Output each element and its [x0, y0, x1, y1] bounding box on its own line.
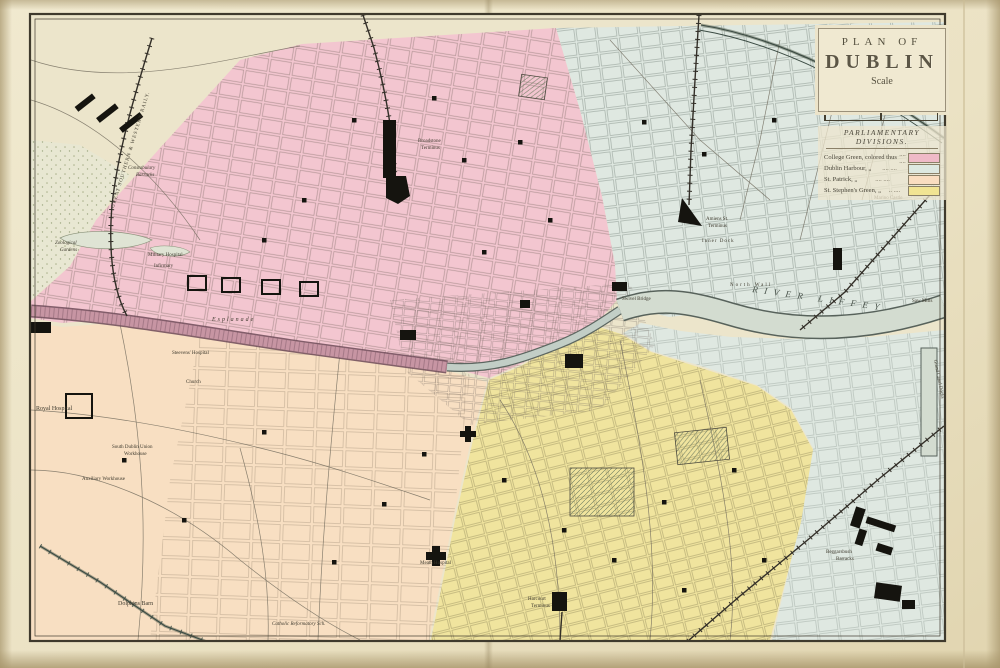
- label-amiens-st-2: Terminus: [708, 224, 727, 229]
- square-mountjoy: [519, 74, 548, 99]
- legend-swatch-st-stephens-green: [908, 186, 940, 196]
- legend-dots: .. ....: [881, 187, 908, 194]
- scale-bar: [824, 112, 938, 121]
- label-beggarsbush: Beggarsbush: [826, 550, 852, 555]
- legend-row-st-stephens-green: St. Stephen's Green, „ .. ....: [818, 185, 946, 196]
- label-zoological: Zoological: [55, 241, 77, 246]
- label-south-dublin-union-2: Workhouse: [124, 452, 147, 457]
- map-title-line2: DUBLIN: [819, 51, 945, 74]
- label-catholic-reformatory: Catholic Reformatory Sch.: [272, 622, 325, 627]
- station-kingsbridge: [31, 322, 51, 333]
- label-broadstone-2: Terminus: [421, 146, 440, 151]
- legend-label: Dublin Harbour, „: [824, 165, 871, 172]
- label-amiens-st: Amiens St.: [706, 217, 728, 222]
- label-swivel-bridge: Swivel Bridge: [622, 297, 652, 302]
- legend-label: St. Patrick, „: [824, 176, 857, 183]
- label-esplanade: Esplanade: [211, 317, 255, 323]
- label-inner-dock: Inner Dock: [702, 239, 735, 244]
- legend-heading: PARLIAMENTARY DIVISIONS.: [826, 128, 938, 149]
- label-harcourt: Harcourt: [528, 597, 546, 602]
- legend-dots: .... ....: [871, 165, 908, 172]
- label-church: Church: [186, 380, 201, 385]
- custom-house: [612, 282, 627, 291]
- legend: PARLIAMENTARY DIVISIONS. College Green, …: [818, 126, 946, 200]
- label-constabulary: Constabulary: [128, 166, 156, 171]
- label-military-hospital: Military Hospital: [148, 253, 183, 258]
- label-steevens-hospital: Steevens' Hospital: [172, 351, 209, 356]
- legend-label: College Green, colored thus: [824, 154, 897, 161]
- legend-dots: .... ....: [897, 151, 908, 165]
- label-broadstone: Broadstone: [418, 139, 442, 144]
- label-zoological-2: Gardens: [60, 248, 77, 253]
- label-north-wall: North Wall: [730, 283, 772, 288]
- title-panel: PLAN OF DUBLIN Scale: [818, 28, 946, 112]
- label-auxiliary-workhouse: Auxiliary Workhouse: [82, 477, 126, 482]
- label-south-dublin-union: South Dublin Union: [112, 445, 153, 450]
- label-beggarsbush-2: Barracks: [836, 557, 854, 562]
- station-harcourt: [552, 592, 567, 611]
- map-page: RIVER LIFFEY Broadstone Terminus Amiens …: [0, 0, 1000, 668]
- legend-swatch-st-patrick: [908, 175, 940, 185]
- legend-label: St. Stephen's Green, „: [824, 187, 881, 194]
- scale-label: Scale: [819, 76, 945, 87]
- label-saw-mills: Saw Mills: [912, 299, 932, 304]
- legend-swatch-dublin-harbour: [908, 164, 940, 174]
- map-title-line1: PLAN OF: [819, 36, 945, 48]
- label-harcourt-2: Terminus: [531, 604, 550, 609]
- legend-swatch-college-green: [908, 153, 940, 163]
- square-merrion: [674, 427, 729, 464]
- square-st-stephens-green: [570, 468, 634, 516]
- label-constabulary-2: Barracks: [136, 173, 154, 178]
- label-royal-hospital: Royal Hospital: [36, 406, 72, 412]
- label-meath-hospital: Meath Hospital: [420, 561, 452, 566]
- label-infirmary: Infirmary: [154, 264, 174, 269]
- legend-dots: .... ....: [857, 176, 908, 183]
- label-dolphins-barn: Dolphins Barn: [118, 601, 153, 607]
- legend-row-st-patrick: St. Patrick, „ .... ....: [818, 174, 946, 185]
- station-westland-row: [833, 248, 842, 270]
- legend-row-college-green: College Green, colored thus .... ....: [818, 152, 946, 163]
- legend-row-dublin-harbour: Dublin Harbour, „ .... ....: [818, 163, 946, 174]
